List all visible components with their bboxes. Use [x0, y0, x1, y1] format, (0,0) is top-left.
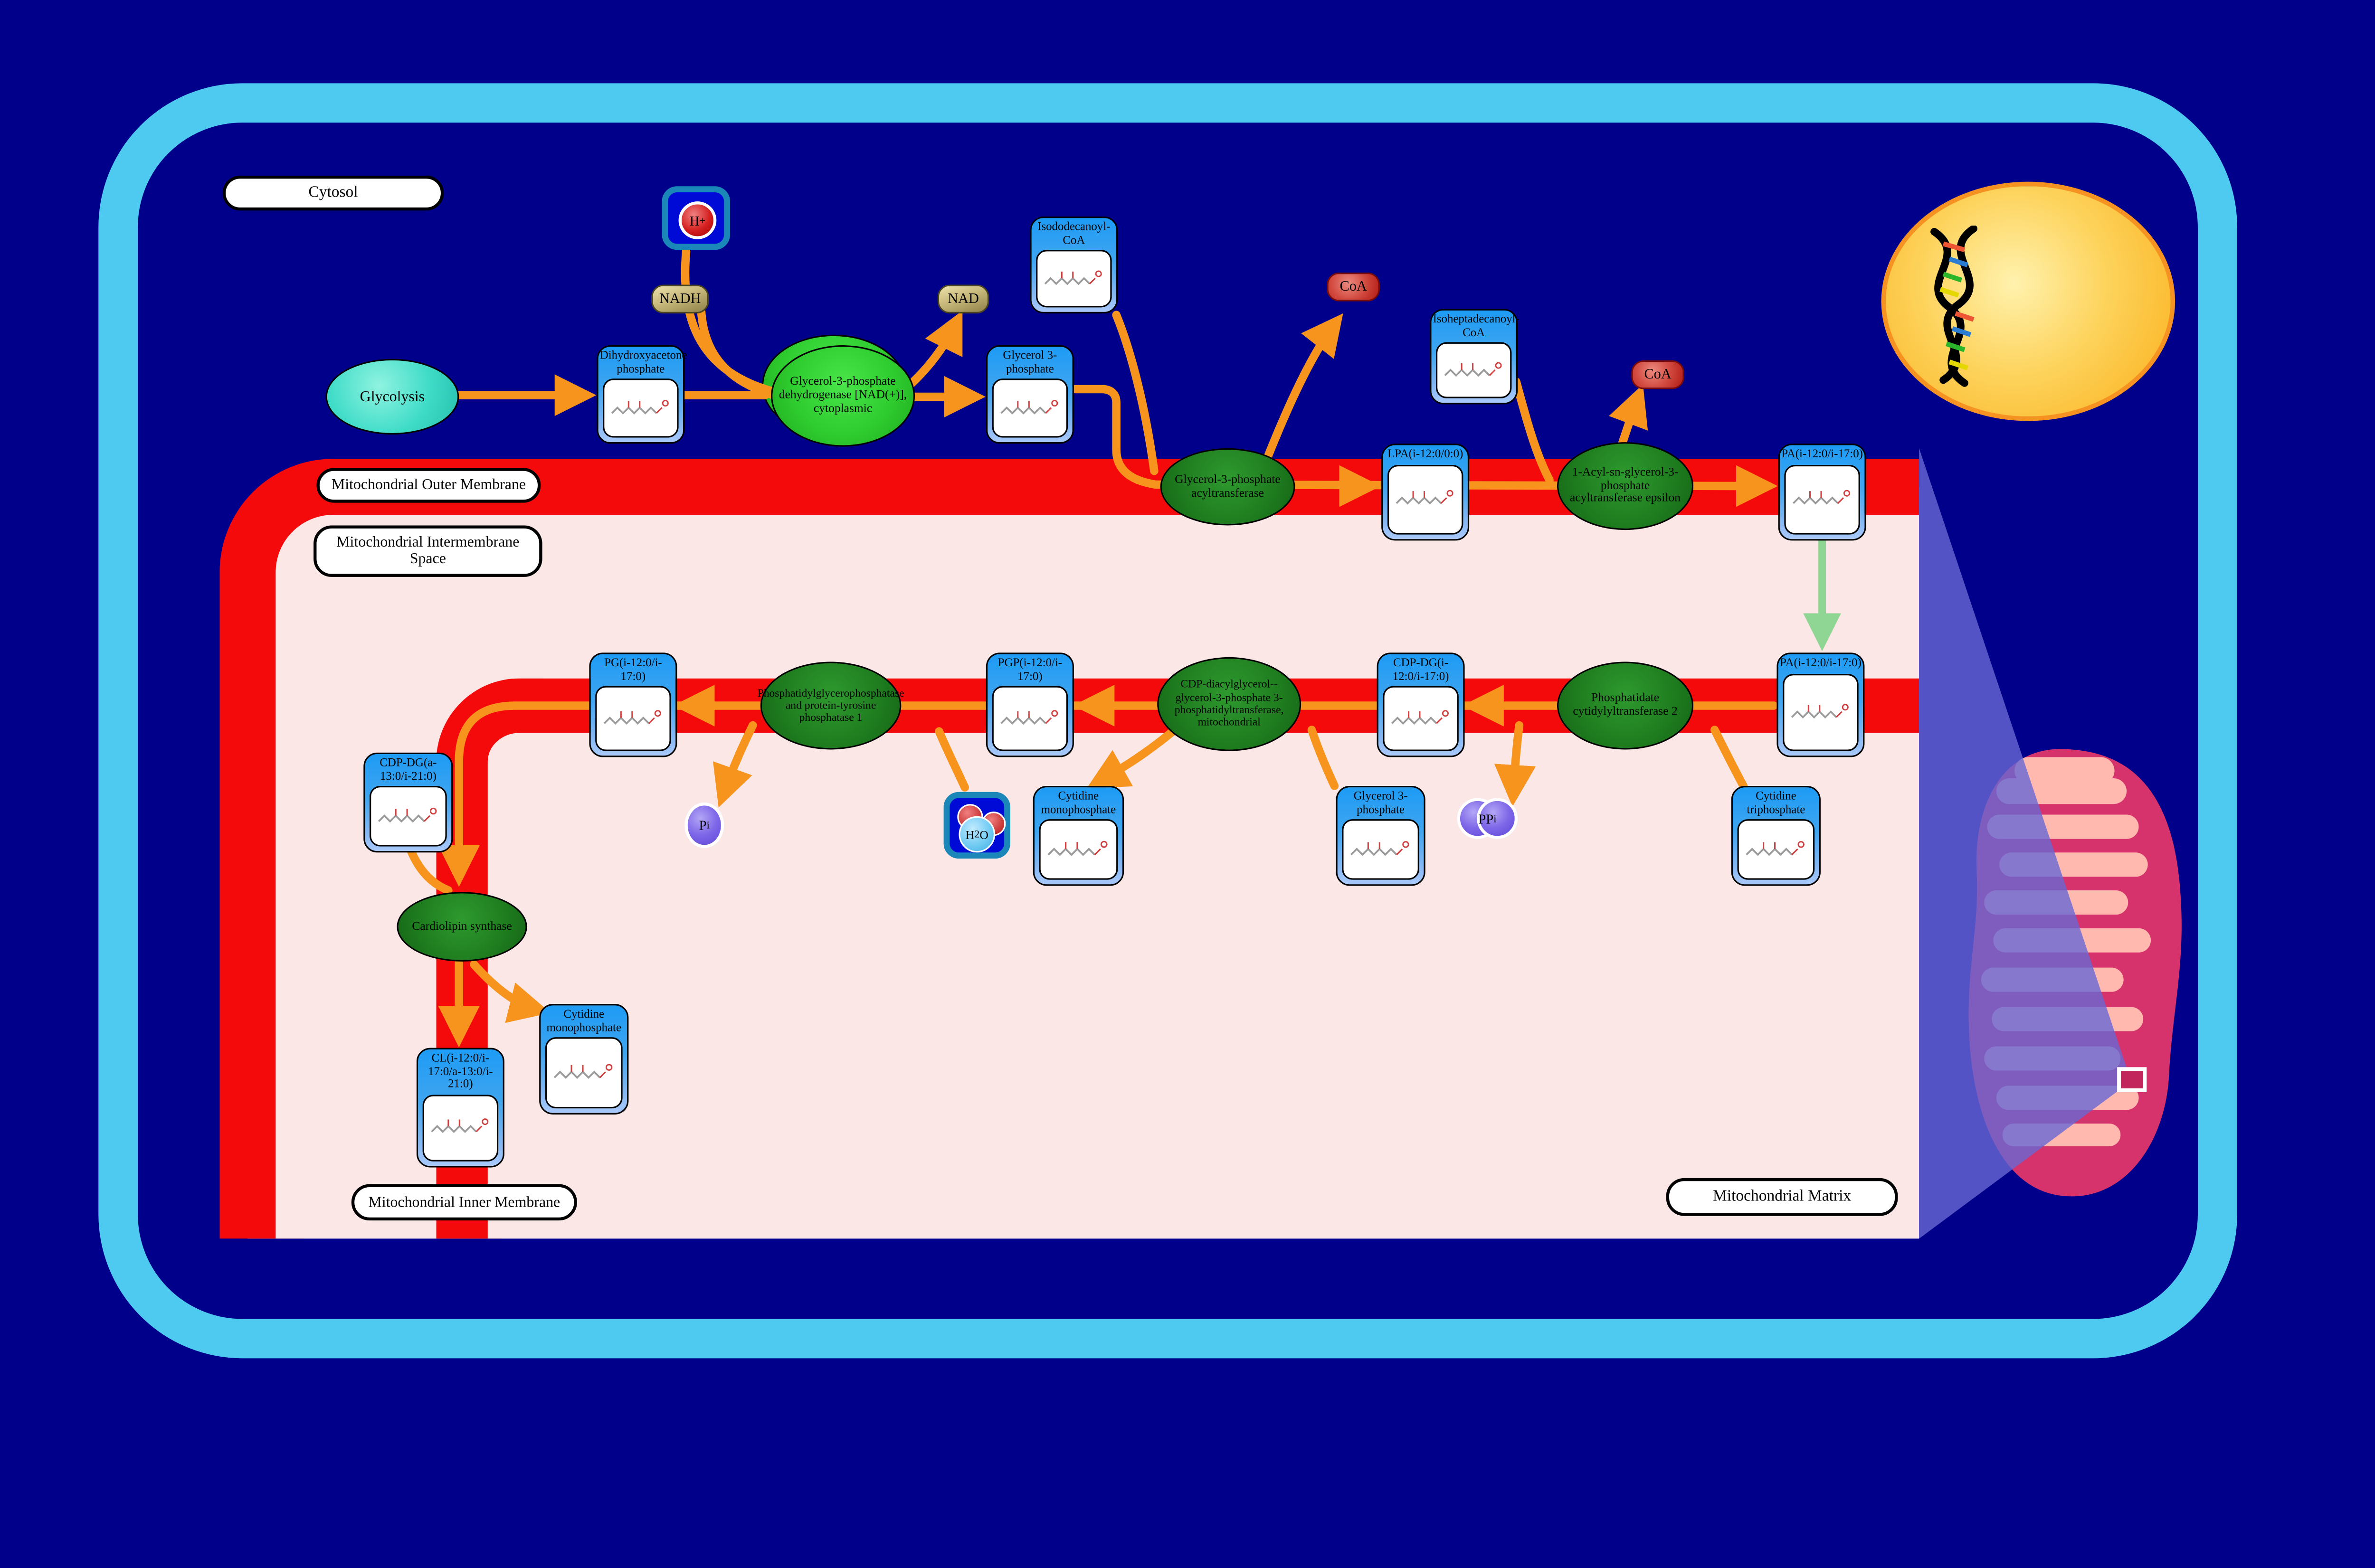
inner-membrane-label-text: Mitochondrial Inner Membrane [368, 1194, 560, 1210]
metabolite-node-lpa[interactable]: LPA(i-12:0/0:0) [1381, 444, 1469, 540]
metabolite-label: Isododecanoyl-CoA [1032, 218, 1117, 248]
metabolite-label: Cytidine monophosphate [541, 1005, 627, 1036]
metabolite-node-g3p-cytosol[interactable]: Glycerol 3-phosphate [986, 345, 1074, 444]
cytosol-label: Cytosol [223, 176, 444, 210]
molecule-structure [370, 786, 447, 846]
metabolite-node-dhap[interactable]: Dihydroxyacetone phosphate [597, 345, 684, 444]
token-label: CoA [1340, 279, 1367, 294]
enzyme-label: Cardiolipin synthase [412, 920, 512, 934]
token-ppi[interactable]: PPi [1457, 796, 1518, 842]
inner-membrane-label: Mitochondrial Inner Membrane [351, 1184, 577, 1221]
molecule-structure [545, 1038, 623, 1108]
metabolite-node-cmp-mid[interactable]: Cytidine monophosphate [1033, 786, 1124, 886]
metabolite-label: Isoheptadecanoyl-CoA [1431, 311, 1516, 341]
metabolite-node-g3p-matrix[interactable]: Glycerol 3-phosphate [1336, 786, 1425, 886]
token-label-sub: i [707, 819, 710, 831]
metabolite-label: LPA(i-12:0/0:0) [1383, 445, 1468, 463]
molecule-structure [992, 686, 1068, 751]
metabolite-node-isoheptadecanoyl-coa[interactable]: Isoheptadecanoyl-CoA [1430, 309, 1518, 405]
molecule-structure [1039, 820, 1118, 880]
molecule-structure [595, 686, 671, 751]
token-label: NADH [659, 292, 701, 307]
molecule-structure [1342, 820, 1419, 880]
token-label: O [979, 828, 988, 841]
metabolite-node-pa-outer[interactable]: PA(i-12:0/i-17:0) [1778, 444, 1866, 540]
metabolite-label: PA(i-12:0/i-17:0) [1780, 445, 1865, 463]
molecule-structure [1783, 673, 1858, 751]
enzyme-label: Glycerol-3-phosphate dehydrogenase [NAD(… [779, 376, 907, 416]
metabolite-node-pgp[interactable]: PGP(i-12:0/i-17:0) [986, 652, 1074, 757]
enzyme-cdp-dag-g3p-transferase[interactable]: CDP-diacylglycerol--glycerol-3-phosphate… [1157, 657, 1301, 751]
metabolite-node-pa-inner[interactable]: PA(i-12:0/i-17:0) [1776, 652, 1864, 757]
h-plus-circle: H+ [679, 201, 717, 239]
matrix-label-text: Mitochondrial Matrix [1713, 1188, 1851, 1206]
outer-membrane-label: Mitochondrial Outer Membrane [316, 468, 541, 502]
metabolite-label: CDP-DG(i-12:0/i-17:0) [1378, 654, 1463, 685]
token-label: P [699, 818, 707, 833]
dna-helix-icon [1913, 226, 2019, 389]
metabolite-label: Cytidine monophosphate [1035, 787, 1122, 818]
metabolite-label: Dihydroxyacetone phosphate [598, 347, 684, 377]
enzyme-pgp-phosphatase[interactable]: Phosphatidylglycerophosphatase and prote… [760, 661, 902, 749]
molecule-structure [1738, 820, 1815, 880]
metabolite-label: CDP-DG(a-13:0/i-21:0) [365, 754, 451, 784]
water-circle: H2O [959, 816, 995, 853]
metabolite-label: Glycerol 3-phosphate [988, 347, 1073, 377]
enzyme-agpat-epsilon[interactable]: 1-Acyl-sn-glycerol-3-phosphate acyltrans… [1557, 442, 1693, 530]
molecule-structure [1436, 342, 1511, 398]
molecule-structure [992, 379, 1068, 438]
molecule-structure [1387, 464, 1463, 535]
enzyme-label: Glycerol-3-phosphate acyltransferase [1168, 473, 1288, 501]
process-glycolysis-label: Glycolysis [360, 388, 425, 405]
enzyme-label: CDP-diacylglycerol--glycerol-3-phosphate… [1165, 679, 1293, 729]
matrix-label: Mitochondrial Matrix [1666, 1178, 1898, 1216]
token-label-sub: i [1493, 813, 1496, 825]
token-label-sup: + [699, 214, 705, 227]
molecule-structure [423, 1094, 498, 1161]
enzyme-cardiolipin-synthase[interactable]: Cardiolipin synthase [397, 892, 527, 962]
mitochondrial-inner-membrane-band [436, 679, 1919, 1239]
metabolite-label: PA(i-12:0/i-17:0) [1778, 654, 1863, 672]
metabolite-node-ctp[interactable]: Cytidine triphosphate [1731, 786, 1821, 886]
enzyme-g3p-dehydrogenase[interactable]: Glycerol-3-phosphate dehydrogenase [NAD(… [771, 345, 915, 447]
metabolite-node-pg[interactable]: PG(i-12:0/i-17:0) [589, 652, 677, 757]
cytosol-label-text: Cytosol [308, 184, 358, 202]
ppi-label-wrap: PPi [1457, 796, 1518, 842]
molecule-structure [1784, 464, 1860, 535]
metabolite-label: PGP(i-12:0/i-17:0) [988, 654, 1073, 685]
enzyme-label: 1-Acyl-sn-glycerol-3-phosphate acyltrans… [1565, 466, 1686, 507]
pathway-canvas: Cytosol Mitochondrial Outer Membrane Mit… [0, 0, 2375, 1452]
intermembrane-space-label: Mitochondrial Intermembrane Space [313, 526, 542, 577]
molecule-structure [1036, 250, 1111, 308]
token-coa-1[interactable]: CoA [1327, 273, 1380, 302]
nucleus [1881, 182, 2175, 421]
metabolite-node-cl[interactable]: CL(i-12:0/i-17:0/a-13:0/i-21:0) [417, 1048, 504, 1168]
metabolite-node-isododecanoyl-coa[interactable]: Isododecanoyl-CoA [1030, 217, 1118, 313]
token-label: H [690, 213, 700, 228]
metabolite-label: Glycerol 3-phosphate [1338, 787, 1424, 818]
token-coa-2[interactable]: CoA [1631, 360, 1684, 389]
intermembrane-space-label-text: Mitochondrial Intermembrane Space [323, 535, 533, 568]
process-glycolysis[interactable]: Glycolysis [326, 359, 459, 435]
token-label: PP [1478, 812, 1493, 827]
outer-membrane-label-text: Mitochondrial Outer Membrane [332, 477, 526, 493]
token-h2o[interactable]: H2O [944, 792, 1010, 859]
enzyme-g3p-acyltransferase[interactable]: Glycerol-3-phosphate acyltransferase [1160, 448, 1295, 526]
enzyme-label: Phosphatidate cytidylyltransferase 2 [1565, 692, 1686, 719]
token-label-sub: 2 [974, 828, 979, 841]
token-h-plus[interactable]: H+ [662, 186, 730, 250]
metabolite-node-cdp-dg[interactable]: CDP-DG(i-12:0/i-17:0) [1377, 652, 1465, 757]
metabolite-label: Cytidine triphosphate [1733, 787, 1819, 818]
metabolite-node-cmp-bottom[interactable]: Cytidine monophosphate [539, 1004, 628, 1115]
molecule-structure [603, 379, 678, 438]
token-label: CoA [1644, 367, 1671, 382]
token-pi[interactable]: Pi [684, 803, 724, 848]
enzyme-pa-cytidylyltransferase[interactable]: Phosphatidate cytidylyltransferase 2 [1557, 661, 1693, 749]
enzyme-label: Phosphatidylglycerophosphatase and prote… [758, 687, 904, 724]
token-nad[interactable]: NAD [938, 284, 989, 313]
token-label: H [966, 828, 974, 841]
metabolite-label: CL(i-12:0/i-17:0/a-13:0/i-21:0) [418, 1049, 503, 1093]
metabolite-node-cdp-dg-acyl[interactable]: CDP-DG(a-13:0/i-21:0) [363, 753, 453, 852]
token-nadh[interactable]: NADH [651, 284, 709, 313]
token-label: NAD [948, 292, 979, 307]
molecule-structure [1383, 686, 1458, 751]
metabolite-label: PG(i-12:0/i-17:0) [591, 654, 676, 685]
